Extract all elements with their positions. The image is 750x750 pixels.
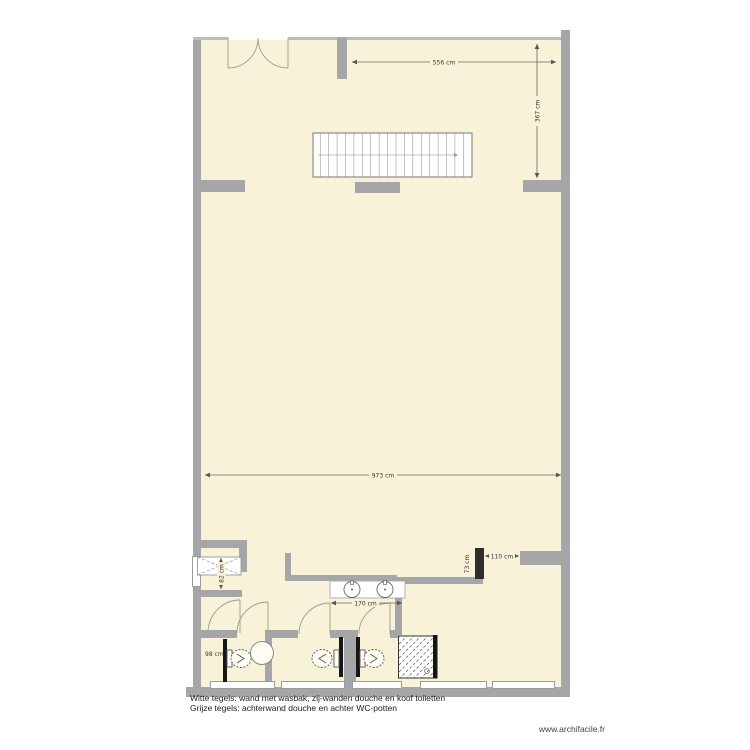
dim-label-counter: 170 cm xyxy=(354,601,377,608)
dim-label-passage: 110 cm xyxy=(491,554,514,561)
dim-label-closet: 82 cm xyxy=(219,564,226,583)
legend-line-1: Witte tegels: wand met wasbak, zij-wande… xyxy=(190,693,445,703)
toilet3-icon xyxy=(360,650,384,668)
staircase xyxy=(313,133,472,177)
entrance-double-door-icon xyxy=(228,38,288,68)
dim-label-upper-width: 556 cm xyxy=(433,60,456,67)
watermark-link[interactable]: www.archifacile.fr xyxy=(505,724,605,734)
double-washbasin-counter-icon xyxy=(330,581,405,599)
legend-line-2: Grijze tegels: achterwand douche en acht… xyxy=(190,703,445,713)
tile-legend: Witte tegels: wand met wasbak, zij-wande… xyxy=(190,693,445,713)
toilet2-door-arc xyxy=(299,603,330,634)
toilet3-door-arc xyxy=(359,603,390,634)
floor-plan-canvas: 556 cm 367 cm 973 cm 170 cm 110 cm 82 cm… xyxy=(0,0,750,750)
toilet1-icon xyxy=(227,650,251,668)
toilet2-icon xyxy=(312,650,339,668)
dim-label-main-width: 973 cm xyxy=(372,473,395,480)
dim-label-toilet-room: 98 cm xyxy=(205,651,224,658)
round-washbasin-icon xyxy=(251,642,274,665)
toilet1-door-arc xyxy=(237,602,268,633)
plan-symbols-overlay: 556 cm 367 cm 973 cm 170 cm 110 cm 82 cm… xyxy=(0,0,750,750)
shower-tray-icon xyxy=(399,635,438,679)
closet-door-arc xyxy=(208,600,240,633)
dim-label-upper-height: 367 cm xyxy=(535,100,542,123)
dim-label-shower-wall: 73 cm xyxy=(464,555,471,574)
